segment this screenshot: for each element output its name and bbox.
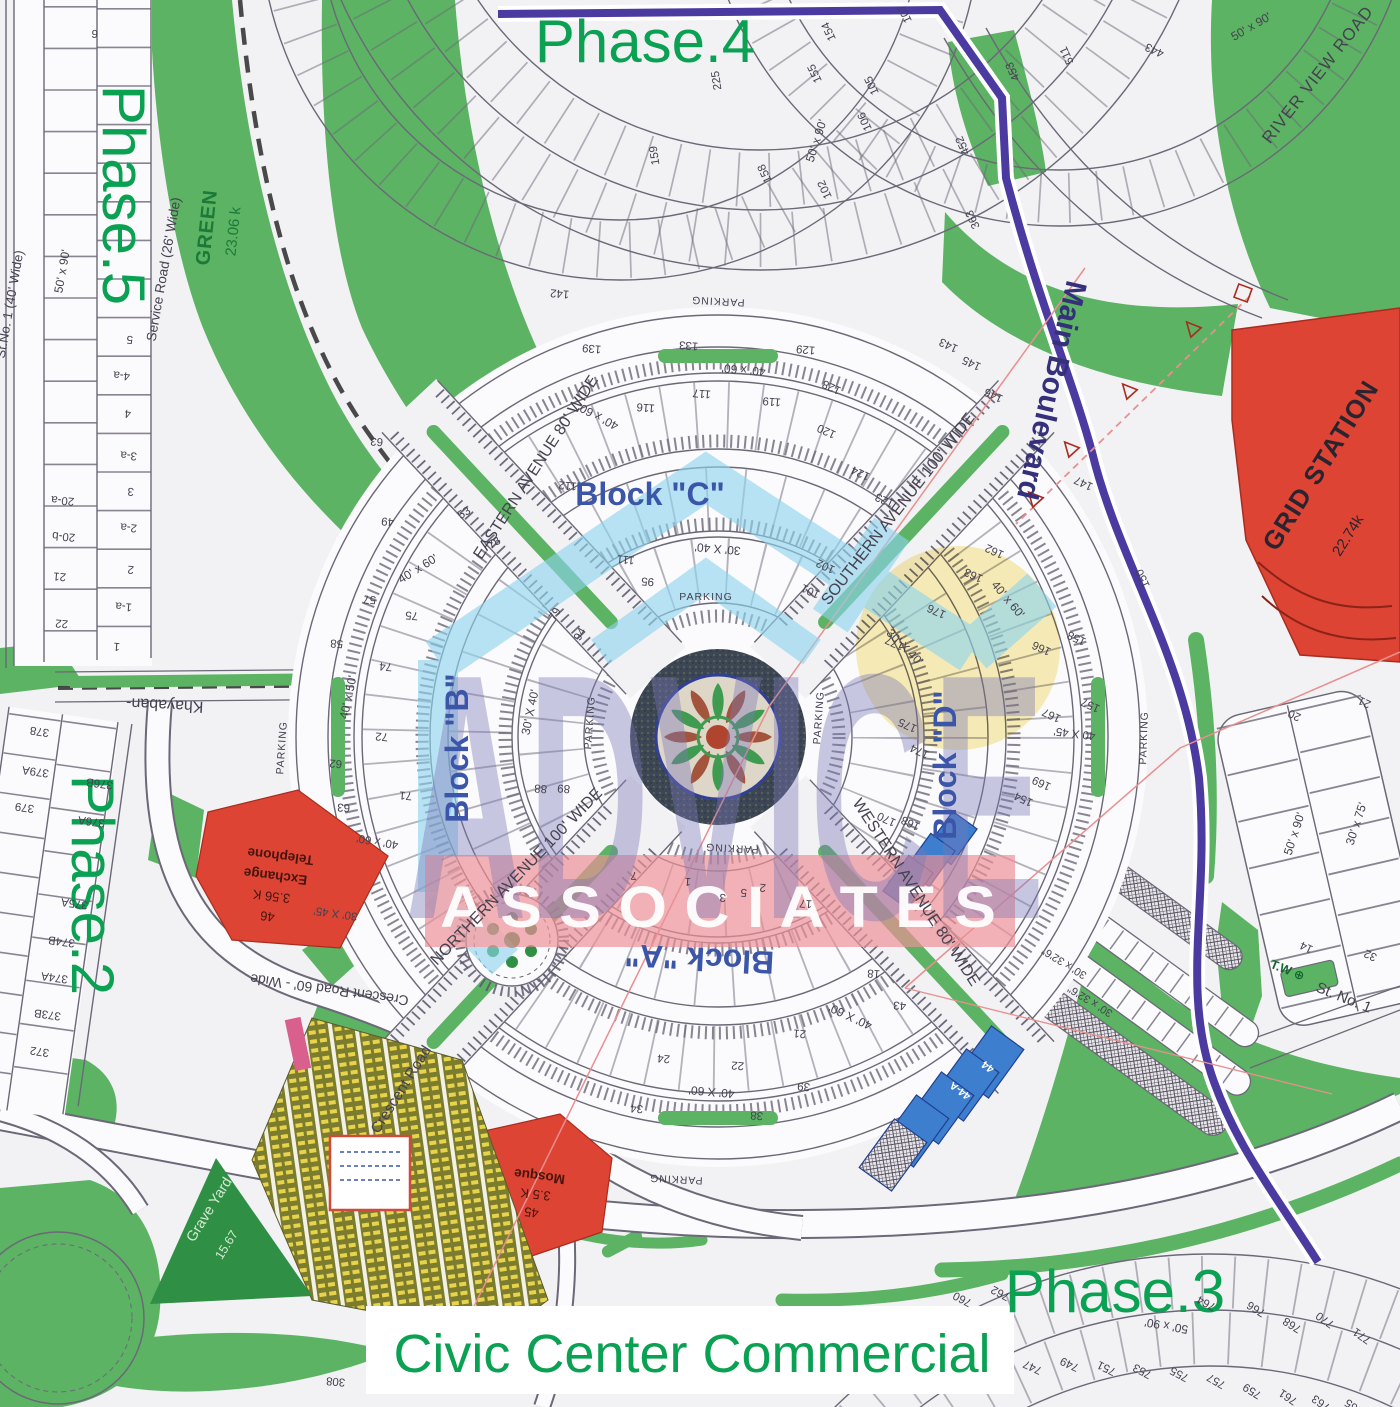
plot-number: 3-a <box>119 448 137 461</box>
plot-number: 74 <box>378 659 392 672</box>
plot-number: 2-a <box>119 520 137 533</box>
block-d-label: Block "D" <box>927 690 963 839</box>
plot-number: 72 <box>375 729 389 742</box>
plot-number: 6 <box>91 27 98 40</box>
plot-number: 142 <box>550 286 570 300</box>
plot-number: 71 <box>399 788 413 801</box>
plot-number: 2 <box>759 881 766 894</box>
plot-number: 38 <box>750 1108 764 1121</box>
block-c-label: Block "C" <box>575 476 724 512</box>
plot-number: 116 <box>636 400 655 414</box>
plot-number: 20-b <box>52 529 76 543</box>
plot-number: 58 <box>330 636 344 649</box>
plot-number: 63 <box>370 434 384 447</box>
plot-number: 18 <box>867 966 881 979</box>
plot-number: 62 <box>329 756 343 769</box>
plot-number: 49 <box>381 514 395 527</box>
plot-number: 17 <box>799 896 813 909</box>
phase-5-label: Phase.5 <box>90 85 157 305</box>
block-b-label: Block "B" <box>439 673 475 822</box>
plot-number: 34 <box>629 1101 643 1114</box>
plot-number: 21 <box>793 1026 807 1039</box>
plot-number: 1 <box>684 875 691 888</box>
parking-label: PARKING <box>1137 711 1151 765</box>
plot-number: 21 <box>53 569 67 582</box>
graveyard-mosque-footprint <box>330 1136 410 1210</box>
scanned-master-plan: Phase.4Phase.5Phase.2Phase.3Civic Center… <box>0 0 1400 1407</box>
plot-number: 3 <box>719 891 726 904</box>
plot-number: 5 <box>126 333 133 346</box>
telephone-exchange-number: 46 <box>259 908 275 925</box>
plot-number: 22 <box>55 616 69 629</box>
plot-number: 133 <box>679 338 699 352</box>
plot-number: 57 <box>363 592 377 605</box>
plot-number: 308 <box>326 1374 346 1388</box>
plot-number: 112 <box>558 478 577 492</box>
plot-number: 63 <box>337 800 351 813</box>
plot-number: 95 <box>641 574 655 587</box>
master-plan-map: Phase.4Phase.5Phase.2Phase.3Civic Center… <box>0 0 1400 1407</box>
phase-4-label: Phase.4 <box>535 8 755 75</box>
plot-number: 4-a <box>112 368 130 381</box>
plot-number: 1 <box>113 640 120 653</box>
parking-label: PARKING <box>679 591 732 603</box>
plot-number: 20-a <box>50 493 75 507</box>
plot-number: 24 <box>656 1051 670 1064</box>
banner-text: Civic Center Commercial <box>393 1324 990 1384</box>
plot-number: 89 <box>557 781 571 794</box>
plot-number: 139 <box>582 341 602 355</box>
plot-number: 111 <box>617 552 635 565</box>
plot-number: 117 <box>692 386 711 400</box>
plot-number: 22 <box>731 1058 745 1071</box>
plot-number: 39 <box>797 1079 811 1092</box>
mosque-number: 45 <box>523 1204 539 1221</box>
plot-number: 3 <box>127 485 134 498</box>
phase-2-label: Phase.2 <box>59 775 126 995</box>
plot-number: 1-a <box>114 599 132 612</box>
plot-number: 7 <box>630 869 637 882</box>
plot-number: 5 <box>740 886 747 899</box>
plot-number: 129 <box>796 342 816 356</box>
plot-number: 88 <box>534 781 548 794</box>
plot-number: 43 <box>893 998 907 1011</box>
phase-3-label: Phase.3 <box>1005 1258 1225 1325</box>
plot-number: 75 <box>405 608 419 621</box>
plot-number: 119 <box>762 394 781 408</box>
plot-number: 2 <box>127 563 134 576</box>
